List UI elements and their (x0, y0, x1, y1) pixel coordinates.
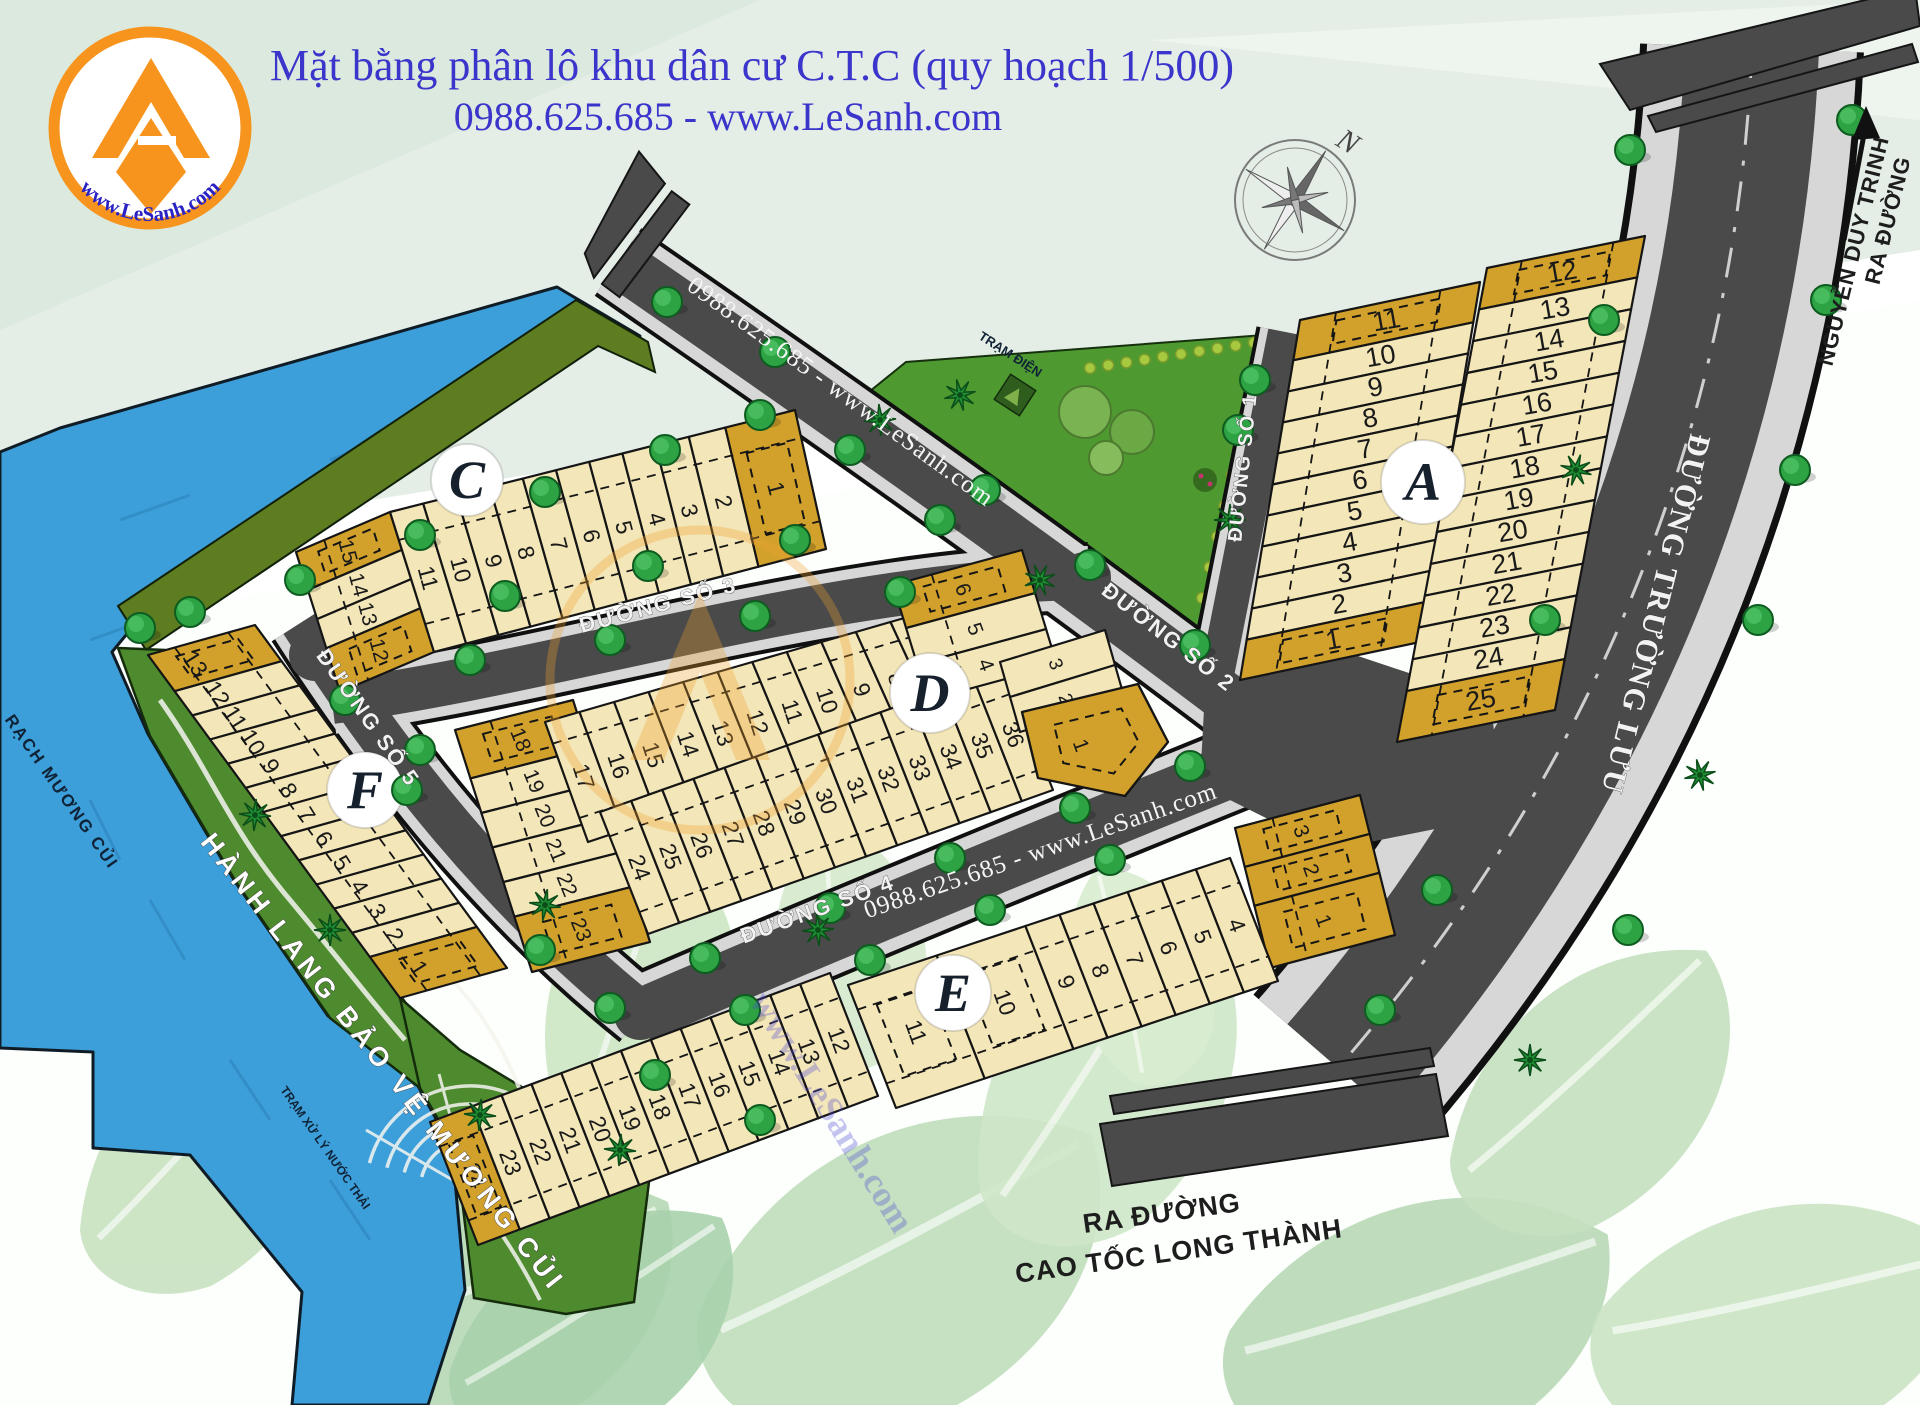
hedge-bush-icon (1085, 363, 1096, 374)
plot-number: 18 (1507, 450, 1542, 485)
block-badge-A: A (1381, 440, 1465, 524)
block-letter: C (449, 450, 486, 510)
plot-number: 23 (1477, 609, 1512, 644)
site-plan-map: 1110987654321121314151617181920212223242… (0, 0, 1920, 1405)
block-letter: D (910, 663, 950, 723)
hedge-bush-icon (1157, 351, 1168, 362)
hedge-bush-icon (1121, 357, 1132, 368)
plot-number: 11 (1370, 303, 1403, 337)
plot-number: 24 (1471, 641, 1506, 676)
plot-number: 12 (1545, 254, 1580, 289)
lesanh-logo: www.LeSanh.com (54, 32, 246, 226)
block-letter: A (1402, 452, 1441, 512)
title-line: Mặt bằng phân lô khu dân cư C.T.C (quy h… (270, 41, 1234, 90)
plot-number: 22 (1483, 577, 1518, 612)
plot-number: 20 (1495, 514, 1530, 549)
hedge-bush-icon (1176, 349, 1187, 360)
plot-number: 16 (1519, 386, 1554, 421)
palm-tree-icon (1514, 1044, 1546, 1076)
hedge-bush-icon (1212, 343, 1223, 354)
block-letter: F (346, 760, 383, 820)
logo-monogram-cut (138, 136, 176, 145)
plot-number: 15 (1525, 355, 1560, 390)
tree-icon (1613, 915, 1649, 945)
block-badge-C: C (431, 444, 503, 516)
subtitle-line: 0988.625.685 - www.LeSanh.com (454, 94, 1002, 139)
palm-tree-icon (1684, 759, 1715, 790)
hedge-bush-icon (1139, 354, 1150, 365)
hedge-bush-icon (1230, 340, 1241, 351)
plot-number: 14 (1532, 323, 1567, 358)
palm-tree-icon (314, 914, 346, 946)
hedge-bush-icon (1194, 346, 1205, 357)
plot-number: 17 (1513, 418, 1548, 453)
plot-number: 19 (1501, 482, 1536, 517)
plot-number: 10 (1363, 339, 1398, 374)
plot-number: 13 (1538, 291, 1573, 326)
tree-icon (1780, 455, 1816, 485)
plot-number: 25 (1463, 682, 1498, 717)
hedge-bush-icon (1103, 360, 1114, 371)
block-letter: E (934, 963, 971, 1023)
block-badge-E: E (915, 955, 991, 1031)
tree-icon (1743, 605, 1779, 635)
site-plan-poster: 1110987654321121314151617181920212223242… (0, 0, 1920, 1405)
block-badge-D: D (890, 653, 970, 733)
plot-number: 21 (1489, 545, 1524, 580)
